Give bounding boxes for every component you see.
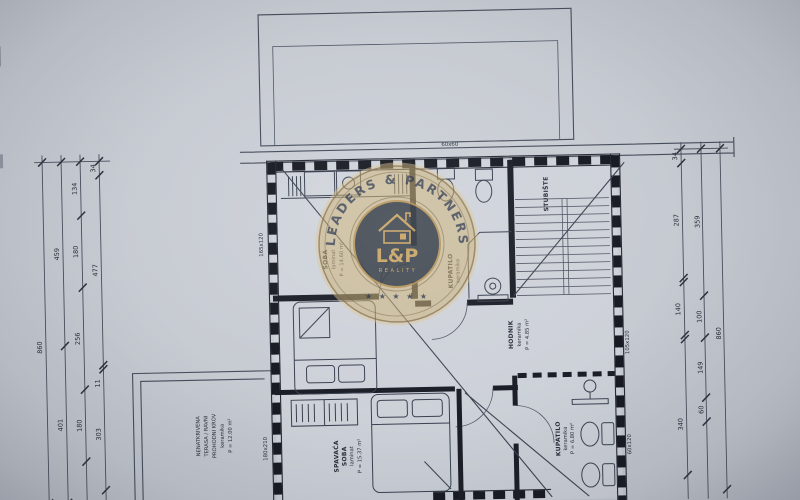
watermark-subtitle: REALITY [379, 268, 418, 274]
room-label: TERASA / RAVNI [203, 415, 210, 458]
watermark-monogram: L&P [376, 245, 419, 267]
dim-label: 100 [695, 310, 703, 323]
dim-label: 134 [71, 183, 79, 196]
opening-label: 180x210 [263, 436, 270, 460]
floor-plan-drawing: 860 459 401 134 180 256 180 34 477 11 30… [0, 0, 800, 500]
dim-lines [674, 141, 735, 499]
watermark-logo: LEADERS & PARTNERS L&P REALITY ★ ★ ★ ★ ★ [317, 164, 477, 324]
opening-label: 60x120 [627, 433, 633, 454]
dim-label: 34 [671, 152, 679, 160]
dim-label: 860 [715, 327, 723, 340]
dim-label: 34 [89, 164, 97, 172]
opening-label: 105x120 [625, 330, 632, 354]
dim-label: 340 [677, 418, 685, 431]
room-label: NENATKRIVENA [195, 416, 202, 457]
dim-label: 359 [693, 215, 701, 228]
dim-label: 149 [696, 361, 704, 374]
roof-terrace-outline [237, 5, 734, 167]
dimension-lines-left: 860 459 401 134 180 256 180 34 477 11 30… [32, 154, 117, 500]
dim-label: 860 [36, 341, 44, 354]
room-label: P = 15.37 m² [357, 439, 364, 474]
room-label: SOBA [341, 446, 348, 466]
dim-label: 180 [72, 245, 80, 258]
roof-outer-rect [258, 8, 574, 146]
room-label: HODNIK [507, 320, 515, 349]
room-label: P = 12.00 m² [227, 418, 234, 453]
dim-label: 287 [672, 214, 680, 227]
floor-plan-photo: 860 459 401 134 180 256 180 34 477 11 30… [0, 0, 800, 500]
watermark-stars: ★ ★ ★ ★ ★ [365, 292, 429, 301]
room-label: STUBIŠTE [542, 176, 550, 211]
opening-label: 165x120 [259, 232, 266, 256]
dim-label: 303 [95, 428, 103, 441]
room-label: PROHODNI KROV [211, 413, 218, 458]
dim-label: 11 [94, 379, 102, 387]
room-label: KUPATILO [555, 421, 563, 456]
room-label: keramika [220, 424, 226, 448]
dimension-lines-right: 34 287 140 340 359 100 149 60 860 [671, 141, 735, 499]
dim-label: 401 [56, 419, 64, 432]
opening-label: 60x60 [441, 142, 459, 148]
paper-edge-marks [0, 46, 1, 168]
roof-inner-rect [273, 41, 560, 146]
dim-label: 180 [75, 419, 83, 432]
wall-bath-stairs [510, 160, 513, 298]
dim-ticks [38, 157, 110, 500]
dim-label: 477 [91, 264, 99, 277]
room-label: keramika [517, 322, 523, 346]
room-label: SPAVAĆA [333, 440, 341, 473]
dim-label: 60 [697, 405, 705, 413]
dim-label: 140 [674, 303, 682, 316]
room-label: P = 4.85 m² [524, 319, 531, 350]
room-label: laminat [349, 446, 355, 466]
dim-label: 256 [74, 332, 82, 345]
dim-label: 459 [53, 248, 61, 261]
wall-bedroom-hall [459, 389, 461, 500]
room-label: keramika [563, 427, 569, 451]
dim-lines [34, 154, 117, 500]
dim-ticks [677, 144, 731, 494]
room-label: P = 6.80 m² [570, 423, 577, 454]
